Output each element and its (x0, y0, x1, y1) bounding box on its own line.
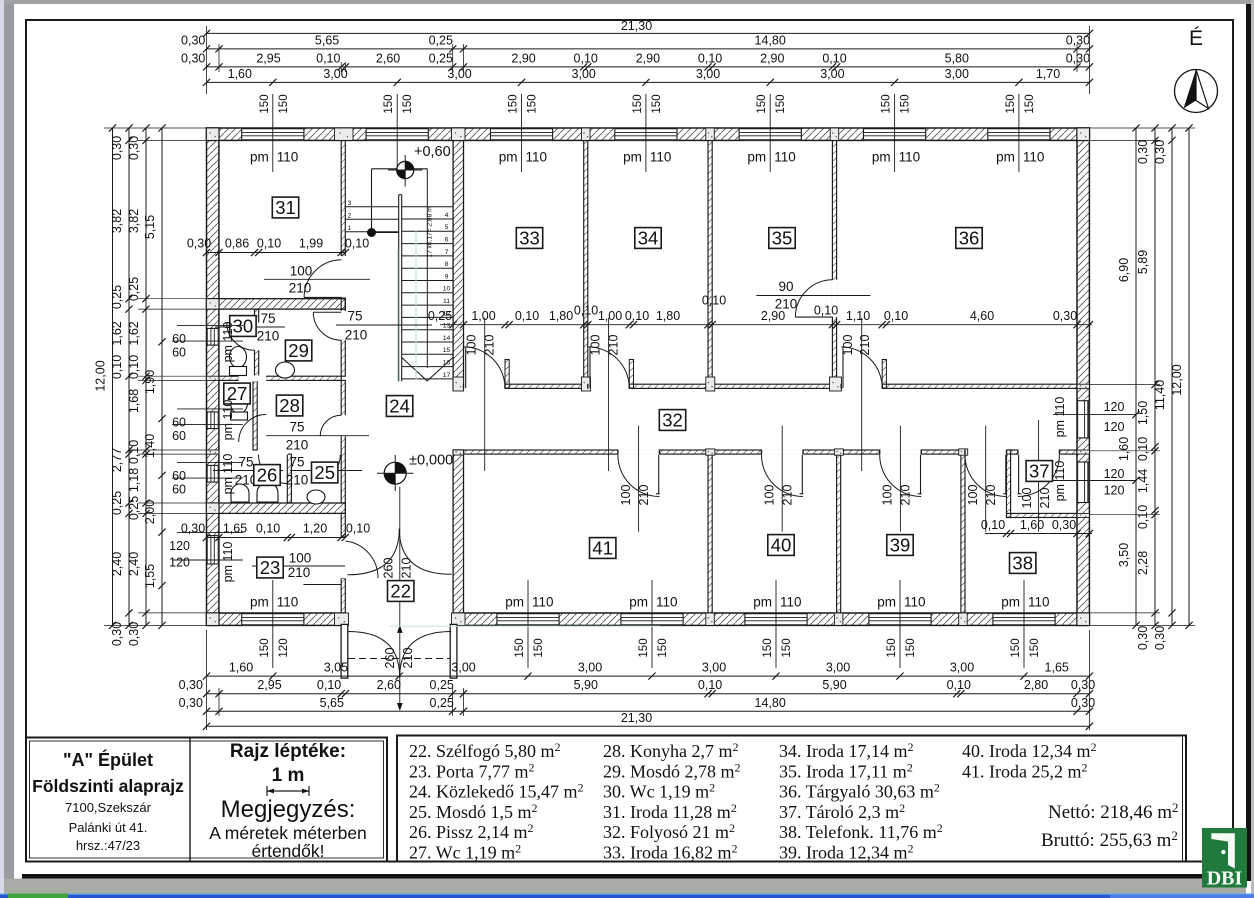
svg-text:5,90: 5,90 (822, 678, 846, 692)
svg-text:60: 60 (172, 346, 186, 360)
svg-text:110: 110 (780, 595, 802, 610)
svg-text:60: 60 (172, 483, 186, 497)
svg-text:4,60: 4,60 (970, 309, 994, 323)
svg-text:14,80: 14,80 (755, 696, 786, 710)
svg-text:17: 17 (443, 372, 451, 379)
svg-text:25. Mosdó 1,5 m2: 25. Mosdó 1,5 m2 (409, 801, 538, 822)
svg-text:10: 10 (443, 286, 451, 293)
svg-text:DBI: DBI (1207, 868, 1243, 890)
svg-text:3,00: 3,00 (945, 67, 969, 81)
svg-text:210: 210 (637, 485, 651, 506)
svg-text:150: 150 (514, 638, 526, 657)
svg-text:2,77: 2,77 (110, 448, 124, 472)
svg-text:0,30: 0,30 (179, 678, 203, 692)
svg-text:150: 150 (508, 94, 520, 113)
svg-text:100: 100 (465, 335, 479, 356)
svg-text:33: 33 (519, 228, 540, 249)
svg-text:3,00: 3,00 (696, 67, 720, 81)
svg-text:60: 60 (172, 332, 186, 346)
svg-text:0,10: 0,10 (1136, 505, 1150, 529)
svg-text:0,10: 0,10 (625, 309, 649, 323)
svg-text:22: 22 (390, 581, 411, 602)
svg-text:0,30: 0,30 (1071, 678, 1095, 692)
svg-text:12,00: 12,00 (94, 360, 108, 391)
svg-text:210: 210 (483, 335, 497, 356)
svg-text:0,25: 0,25 (127, 277, 141, 301)
svg-text:pm: pm (505, 595, 524, 610)
svg-text:1,65: 1,65 (223, 522, 247, 536)
svg-text:3,82: 3,82 (110, 209, 124, 233)
svg-text:"A" Épület: "A" Épület (63, 749, 153, 770)
svg-text:110: 110 (277, 150, 299, 165)
svg-text:0,30: 0,30 (1053, 309, 1077, 323)
svg-text:34: 34 (638, 228, 659, 249)
svg-text:150: 150 (638, 638, 650, 657)
svg-text:38: 38 (1012, 553, 1033, 574)
svg-text:0,30: 0,30 (181, 33, 205, 47)
svg-text:0,30: 0,30 (1071, 696, 1095, 710)
svg-text:0,10: 0,10 (1136, 437, 1150, 461)
svg-text:150: 150 (1024, 94, 1036, 113)
svg-text:100: 100 (619, 485, 633, 506)
svg-text:150: 150 (1010, 638, 1022, 657)
svg-text:3,50: 3,50 (1117, 543, 1131, 567)
svg-text:41. Iroda 25,2 m2: 41. Iroda 25,2 m2 (962, 760, 1087, 781)
svg-text:Rajz léptéke:: Rajz léptéke: (230, 741, 346, 762)
svg-text:2,80: 2,80 (1024, 678, 1048, 692)
svg-text:110: 110 (899, 150, 921, 165)
svg-text:14,80: 14,80 (755, 33, 786, 47)
svg-text:110: 110 (526, 150, 548, 165)
svg-text:0,30: 0,30 (1066, 33, 1090, 47)
svg-text:150: 150 (632, 94, 644, 113)
svg-text:pm 110: pm 110 (1053, 461, 1067, 502)
svg-text:É: É (1189, 27, 1203, 50)
svg-text:90: 90 (778, 279, 793, 294)
svg-text:Megjegyzés:: Megjegyzés: (221, 796, 356, 823)
svg-text:Nettó: 218,46 m2: Nettó: 218,46 m2 (1048, 800, 1179, 823)
svg-text:100: 100 (881, 485, 895, 506)
svg-text:pm: pm (250, 595, 269, 610)
svg-text:0,25: 0,25 (127, 496, 141, 520)
svg-text:2,40: 2,40 (110, 552, 124, 576)
svg-text:120: 120 (169, 555, 190, 569)
svg-text:3,00: 3,00 (950, 661, 974, 675)
svg-text:110: 110 (277, 595, 299, 610)
svg-text:0,10: 0,10 (316, 51, 340, 65)
svg-text:100: 100 (1020, 488, 1034, 509)
svg-text:7100,Szekszár: 7100,Szekszár (65, 800, 152, 815)
svg-text:150: 150 (259, 638, 271, 657)
svg-text:39: 39 (890, 535, 911, 556)
svg-text:2,60: 2,60 (376, 51, 400, 65)
svg-text:210: 210 (345, 328, 368, 343)
svg-text:3,00: 3,00 (820, 67, 844, 81)
svg-text:22. Szélfogó 5,80 m2: 22. Szélfogó 5,80 m2 (409, 740, 561, 761)
svg-text:110: 110 (904, 595, 926, 610)
svg-text:0,10: 0,10 (884, 309, 908, 323)
svg-text:100: 100 (290, 264, 313, 279)
svg-text:150: 150 (527, 94, 539, 113)
svg-text:39. Iroda 12,34 m2: 39. Iroda 12,34 m2 (779, 842, 913, 863)
svg-text:110: 110 (1023, 150, 1045, 165)
svg-text:1,62: 1,62 (127, 321, 141, 345)
svg-text:120: 120 (278, 638, 290, 657)
svg-text:0,10: 0,10 (345, 237, 369, 251)
svg-text:3,00: 3,00 (572, 67, 596, 81)
svg-text:150: 150 (756, 94, 768, 113)
svg-text:pm: pm (872, 150, 891, 165)
svg-text:120: 120 (1104, 467, 1125, 481)
svg-text:0,30: 0,30 (1066, 51, 1090, 65)
svg-text:13: 13 (443, 323, 451, 330)
svg-text:21,30: 21,30 (621, 19, 652, 33)
svg-text:210: 210 (607, 335, 621, 356)
svg-text:0,10: 0,10 (317, 678, 341, 692)
svg-text:3,82: 3,82 (127, 209, 141, 233)
svg-text:150: 150 (259, 94, 271, 113)
svg-text:150: 150 (533, 638, 545, 657)
svg-text:Földszinti alaprajz: Földszinti alaprajz (32, 776, 184, 796)
svg-text:0,10: 0,10 (346, 522, 370, 536)
svg-text:pm 110: pm 110 (221, 400, 235, 441)
svg-text:pm: pm (877, 595, 896, 610)
svg-text:41: 41 (592, 538, 613, 559)
svg-text:0,10: 0,10 (981, 518, 1005, 532)
svg-text:Palánki út 41.: Palánki út 41. (69, 820, 148, 835)
svg-text:150: 150 (402, 94, 414, 113)
svg-text:32: 32 (662, 410, 683, 431)
svg-text:5,89: 5,89 (1136, 250, 1150, 274)
svg-text:1,40: 1,40 (143, 434, 157, 458)
svg-text:210: 210 (858, 335, 872, 356)
svg-text:2,95: 2,95 (256, 51, 280, 65)
svg-text:pm: pm (753, 595, 772, 610)
svg-text:pm: pm (623, 150, 642, 165)
svg-text:25: 25 (314, 462, 335, 483)
svg-text:150: 150 (278, 94, 290, 113)
svg-text:pm 110: pm 110 (1053, 397, 1067, 438)
svg-text:1,00: 1,00 (471, 309, 495, 323)
svg-text:100: 100 (589, 335, 603, 356)
svg-text:150: 150 (1029, 638, 1041, 657)
svg-text:23: 23 (260, 557, 281, 578)
svg-text:31: 31 (275, 197, 296, 218)
svg-text:0,10: 0,10 (814, 304, 838, 318)
svg-text:0,30: 0,30 (1136, 626, 1150, 650)
svg-text:1,99: 1,99 (299, 237, 323, 251)
svg-text:37: 37 (1029, 461, 1050, 482)
svg-text:150: 150 (905, 638, 917, 657)
svg-text:110: 110 (774, 150, 796, 165)
svg-text:pm 110: pm 110 (221, 542, 235, 583)
svg-text:21,30: 21,30 (621, 711, 652, 725)
svg-text:3: 3 (348, 200, 352, 207)
svg-text:0,10: 0,10 (257, 237, 281, 251)
svg-text:0,10: 0,10 (574, 304, 598, 318)
svg-text:210: 210 (257, 329, 280, 344)
svg-text:5,65: 5,65 (320, 696, 344, 710)
svg-text:2,28: 2,28 (1136, 551, 1150, 575)
svg-text:1,62: 1,62 (110, 321, 124, 345)
svg-text:±0,000: ±0,000 (409, 453, 453, 469)
svg-text:0,30: 0,30 (127, 136, 141, 160)
svg-text:110: 110 (650, 150, 672, 165)
svg-text:0,10: 0,10 (822, 51, 846, 65)
svg-text:0,25: 0,25 (110, 285, 124, 309)
svg-text:150: 150 (775, 94, 787, 113)
svg-text:3,05: 3,05 (324, 661, 348, 675)
svg-text:150: 150 (886, 638, 898, 657)
svg-text:28. Konyha 2,7 m2: 28. Konyha 2,7 m2 (603, 740, 739, 761)
svg-text:pm: pm (1001, 595, 1020, 610)
svg-text:1,10: 1,10 (846, 309, 870, 323)
svg-text:100: 100 (966, 485, 980, 506)
svg-text:pm: pm (250, 150, 269, 165)
svg-text:24: 24 (389, 396, 410, 417)
svg-text:0,30: 0,30 (1052, 518, 1076, 532)
svg-text:5,90: 5,90 (574, 678, 598, 692)
svg-text:1,80: 1,80 (549, 309, 573, 323)
svg-text:210: 210 (1038, 488, 1052, 509)
svg-text:2,40: 2,40 (127, 552, 141, 576)
svg-text:100: 100 (841, 335, 855, 356)
svg-text:6: 6 (445, 237, 449, 244)
svg-text:7: 7 (445, 249, 449, 256)
svg-text:120: 120 (1104, 420, 1125, 434)
svg-text:pm 110: pm 110 (221, 322, 235, 363)
svg-text:15: 15 (443, 347, 451, 354)
svg-text:1,68: 1,68 (127, 389, 141, 413)
svg-text:0,86: 0,86 (225, 237, 249, 251)
svg-text:9: 9 (445, 273, 449, 280)
svg-text:1,18: 1,18 (127, 468, 141, 492)
svg-text:0,30: 0,30 (1136, 140, 1150, 164)
svg-text:0,25: 0,25 (429, 51, 453, 65)
svg-text:0,10: 0,10 (256, 522, 280, 536)
svg-text:0,10: 0,10 (127, 440, 141, 464)
svg-text:3,00: 3,00 (323, 67, 347, 81)
svg-text:40. Iroda 12,34 m2: 40. Iroda 12,34 m2 (962, 740, 1096, 761)
svg-text:1,55: 1,55 (143, 564, 157, 588)
svg-text:210: 210 (286, 473, 309, 488)
svg-text:2,90: 2,90 (636, 51, 660, 65)
svg-text:1,20: 1,20 (303, 522, 327, 536)
svg-text:29: 29 (288, 340, 309, 361)
svg-text:2: 2 (348, 213, 352, 220)
svg-text:0,25: 0,25 (430, 678, 454, 692)
svg-text:6,90: 6,90 (1117, 258, 1131, 282)
svg-text:75: 75 (347, 309, 362, 324)
svg-text:0,10: 0,10 (698, 51, 722, 65)
svg-text:3,00: 3,00 (702, 661, 726, 675)
svg-text:150: 150 (881, 94, 893, 113)
svg-text:0,10: 0,10 (947, 678, 971, 692)
svg-text:29. Mosdó 2,78 m2: 29. Mosdó 2,78 m2 (603, 760, 741, 781)
svg-text:pm: pm (499, 150, 518, 165)
svg-text:1,90: 1,90 (143, 370, 157, 394)
svg-text:2,90: 2,90 (761, 309, 785, 323)
svg-text:5,65: 5,65 (315, 33, 339, 47)
svg-text:120: 120 (1104, 400, 1125, 414)
svg-text:38. Telefonk. 11,76 m2: 38. Telefonk. 11,76 m2 (779, 821, 943, 842)
svg-text:+0,60: +0,60 (414, 144, 451, 160)
svg-text:110: 110 (532, 595, 554, 610)
svg-text:2,00: 2,00 (143, 500, 157, 524)
svg-text:1,50: 1,50 (1136, 401, 1150, 425)
svg-text:pm: pm (747, 150, 766, 165)
svg-text:150: 150 (651, 94, 663, 113)
svg-text:11: 11 (443, 298, 450, 305)
svg-text:110: 110 (656, 595, 678, 610)
svg-text:2,90: 2,90 (511, 51, 535, 65)
svg-text:értendők!: értendők! (252, 841, 325, 861)
svg-text:260: 260 (382, 558, 396, 579)
svg-text:37. Tároló 2,3 m2: 37. Tároló 2,3 m2 (779, 801, 905, 822)
svg-text:1 m: 1 m (272, 765, 305, 786)
svg-text:27. Wc 1,19 m2: 27. Wc 1,19 m2 (409, 842, 521, 863)
svg-text:0,10: 0,10 (110, 355, 124, 379)
svg-text:150: 150 (781, 638, 793, 657)
svg-text:pm: pm (629, 595, 648, 610)
svg-text:1,80: 1,80 (656, 309, 680, 323)
svg-text:0,10: 0,10 (127, 355, 141, 379)
svg-text:1,60: 1,60 (1020, 518, 1044, 532)
svg-text:40: 40 (771, 535, 792, 556)
svg-text:34. Iroda 17,14 m2: 34. Iroda 17,14 m2 (779, 740, 913, 761)
svg-text:1,70: 1,70 (1036, 67, 1060, 81)
svg-text:4: 4 (445, 212, 449, 219)
svg-text:0,10: 0,10 (574, 51, 598, 65)
svg-text:0,10: 0,10 (515, 309, 539, 323)
svg-text:36. Tárgyaló 30,63 m2: 36. Tárgyaló 30,63 m2 (779, 781, 940, 802)
svg-text:5,80: 5,80 (945, 51, 969, 65)
svg-text:210: 210 (899, 485, 913, 506)
svg-text:1,65: 1,65 (1045, 661, 1069, 675)
svg-text:12,00: 12,00 (1170, 364, 1184, 395)
svg-text:60: 60 (172, 469, 186, 483)
svg-text:1,60: 1,60 (228, 67, 252, 81)
svg-text:210: 210 (286, 438, 309, 453)
svg-text:0,30: 0,30 (1153, 626, 1167, 650)
svg-text:210: 210 (289, 281, 312, 296)
svg-text:14: 14 (443, 335, 451, 342)
svg-text:0,25: 0,25 (429, 33, 453, 47)
svg-text:210: 210 (400, 558, 414, 579)
svg-text:36: 36 (959, 228, 980, 249)
svg-text:pm 110: pm 110 (221, 454, 235, 495)
svg-text:120: 120 (1104, 484, 1125, 498)
svg-text:1,60: 1,60 (1117, 437, 1131, 461)
svg-text:3,00: 3,00 (578, 661, 602, 675)
svg-text:26. Pissz 2,14 m2: 26. Pissz 2,14 m2 (409, 821, 534, 842)
svg-text:150: 150 (383, 94, 395, 113)
svg-text:A méretek méterben: A méretek méterben (209, 823, 367, 843)
svg-text:100: 100 (763, 485, 777, 506)
svg-text:28: 28 (279, 395, 300, 416)
svg-text:60: 60 (172, 415, 186, 429)
svg-text:8: 8 (445, 261, 449, 268)
svg-text:0,30: 0,30 (110, 136, 124, 160)
svg-text:210: 210 (984, 485, 998, 506)
svg-text:110: 110 (1028, 595, 1050, 610)
svg-text:1,44: 1,44 (1136, 469, 1150, 493)
svg-text:210: 210 (288, 565, 311, 580)
svg-text:75: 75 (289, 455, 304, 470)
svg-text:32. Folyosó 21 m2: 32. Folyosó 21 m2 (603, 821, 735, 842)
svg-text:210: 210 (781, 485, 795, 506)
svg-text:0,30: 0,30 (187, 237, 211, 251)
svg-text:0,10: 0,10 (702, 294, 726, 308)
svg-text:0,30: 0,30 (181, 51, 205, 65)
svg-text:3,00: 3,00 (451, 661, 475, 675)
svg-text:1: 1 (348, 225, 352, 232)
svg-text:120: 120 (169, 539, 190, 553)
svg-text:0,30: 0,30 (1153, 140, 1167, 164)
svg-text:23. Porta 7,77 m2: 23. Porta 7,77 m2 (409, 760, 535, 781)
svg-text:30: 30 (233, 316, 254, 337)
svg-text:3,00: 3,00 (826, 661, 850, 675)
svg-text:26: 26 (257, 465, 278, 486)
svg-text:0,25: 0,25 (110, 491, 124, 515)
svg-text:100: 100 (289, 551, 312, 566)
svg-text:5: 5 (445, 224, 449, 231)
svg-text:0,30: 0,30 (179, 696, 203, 710)
svg-text:210: 210 (401, 648, 415, 669)
svg-text:30. Wc 1,19 m2: 30. Wc 1,19 m2 (603, 781, 715, 802)
svg-text:hrsz.:47/23: hrsz.:47/23 (76, 838, 140, 853)
svg-text:33. Iroda 16,82 m2: 33. Iroda 16,82 m2 (603, 842, 737, 863)
svg-text:0,30: 0,30 (181, 522, 205, 536)
svg-text:2,90: 2,90 (760, 51, 784, 65)
svg-text:5,15: 5,15 (143, 215, 157, 239)
svg-text:1,00: 1,00 (598, 309, 622, 323)
svg-text:24. Közlekedő 15,47 m2: 24. Közlekedő 15,47 m2 (409, 781, 583, 802)
svg-text:35: 35 (772, 228, 793, 249)
svg-text:31. Iroda 11,28 m2: 31. Iroda 11,28 m2 (603, 801, 737, 822)
svg-text:2,60: 2,60 (377, 678, 401, 692)
svg-text:Bruttó: 255,63 m2: Bruttó: 255,63 m2 (1041, 828, 1178, 851)
svg-text:60: 60 (172, 429, 186, 443)
svg-text:3,00: 3,00 (447, 67, 471, 81)
svg-text:150: 150 (657, 638, 669, 657)
svg-text:0,25: 0,25 (430, 696, 454, 710)
svg-text:1,60: 1,60 (229, 661, 253, 675)
svg-text:pm: pm (996, 150, 1015, 165)
svg-text:150: 150 (1005, 94, 1017, 113)
svg-text:0,25: 0,25 (428, 309, 452, 323)
svg-text:75: 75 (260, 311, 275, 326)
svg-text:0,10: 0,10 (698, 678, 722, 692)
svg-text:2,95: 2,95 (257, 678, 281, 692)
svg-text:150: 150 (762, 638, 774, 657)
svg-text:75: 75 (289, 420, 304, 435)
svg-text:35. Iroda 17,11 m2: 35. Iroda 17,11 m2 (779, 760, 913, 781)
svg-text:150: 150 (900, 94, 912, 113)
svg-text:260: 260 (383, 648, 397, 669)
